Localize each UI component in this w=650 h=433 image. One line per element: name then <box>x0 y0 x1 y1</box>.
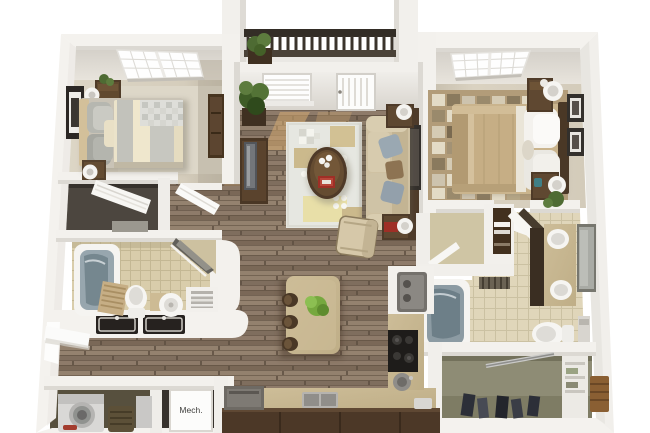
svg-text:Mech.: Mech. <box>179 405 202 415</box>
